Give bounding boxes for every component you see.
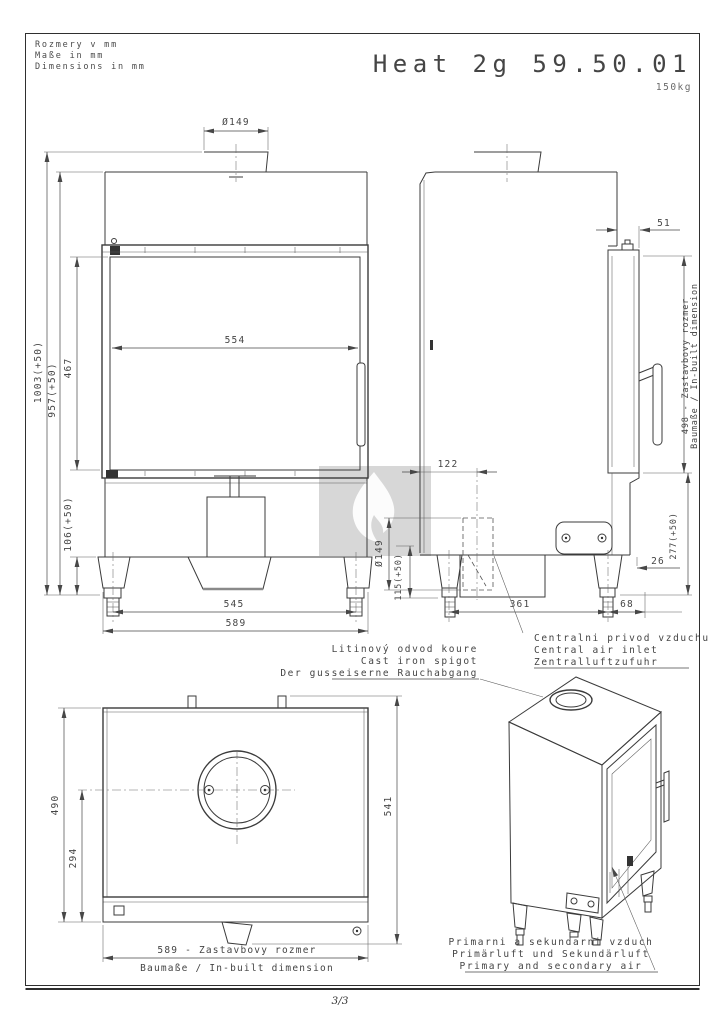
isometric-view [509, 677, 669, 945]
dim-height-body: 957(+50) [47, 362, 58, 417]
callout-spigot-de: Der gusseiserne Rauchabgang [280, 668, 478, 679]
door-handle-side [653, 364, 662, 445]
dim-legs-span: 361 [510, 599, 531, 610]
dim-height-glass: 467 [63, 358, 74, 379]
dim-inbuilt-height-sub: Baumaße / In-built dimension [690, 283, 700, 449]
dim-feet-span: 545 [224, 599, 245, 610]
dim-rear-gap: 26 [651, 556, 665, 567]
dim-air-inlet-height: 115(+50) [394, 553, 404, 600]
dim-depth-total: 541 [383, 796, 394, 817]
drawing-title: Heat 2g 59.50.01 [373, 50, 692, 78]
dim-lower-height: 277(+50) [669, 512, 679, 559]
units-note-de: Maße in mm [35, 51, 104, 61]
dim-depth-body: 490 [50, 795, 61, 816]
dim-width-total: 589 [226, 618, 247, 629]
callout-primary-air-cz: Primarni a sekundarni vzduch [449, 937, 654, 948]
units-note-en: Dimensions in mm [35, 62, 146, 72]
callout-primary-air-de: Primärluft und Sekundärluft [452, 949, 650, 960]
dim-height-base: 106(+50) [63, 496, 74, 551]
dim-flue-back-offset: 122 [438, 459, 459, 470]
drawing-sheet: Ø149 554 1003(+50) 957(+50) 467 106(+50)… [0, 0, 725, 1024]
callout-spigot-en: Cast iron spigot [361, 656, 478, 667]
callout-primary-air-en: Primary and secondary air [460, 961, 643, 972]
callout-spigot-cz: Litinový odvod koure [332, 644, 478, 655]
page-number: 3/3 [332, 995, 349, 1007]
front-view: Ø149 554 1003(+50) 957(+50) 467 106(+50)… [33, 117, 372, 634]
top-view: 490 294 541 589 - Zastavbovy rozmer Baum… [50, 696, 402, 974]
callout-cast-iron-spigot: Litinový odvod koure Cast iron spigot De… [280, 644, 543, 697]
dim-glass-width: 554 [225, 335, 246, 346]
dim-top-offset: 51 [657, 218, 671, 229]
technical-drawing-canvas: Ø149 554 1003(+50) 957(+50) 467 106(+50)… [0, 0, 725, 1024]
door-handle-front [357, 363, 365, 446]
header: Rozmery v mm Maße in mm Dimensions in mm… [35, 40, 692, 93]
dim-width-inbuilt: 589 - Zastavbovy rozmer [157, 945, 316, 956]
dim-flue-center-offset: 294 [68, 848, 79, 869]
dim-air-inlet-diameter: Ø149 [374, 539, 385, 567]
units-note-cz: Rozmery v mm [35, 40, 118, 50]
callout-central-air-de: Zentralluftzufuhr [534, 657, 658, 668]
dim-height-total: 1003(+50) [33, 341, 44, 403]
dim-rear-leg-offset: 68 [620, 599, 634, 610]
callout-central-air-en: Central air inlet [534, 645, 658, 656]
dim-width-inbuilt-sub: Baumaße / In-built dimension [140, 963, 334, 974]
weight-label: 150kg [656, 82, 692, 93]
callout-central-air-cz: Centralni privod vzduchu [534, 633, 710, 644]
dim-flue-diameter: Ø149 [222, 117, 250, 128]
